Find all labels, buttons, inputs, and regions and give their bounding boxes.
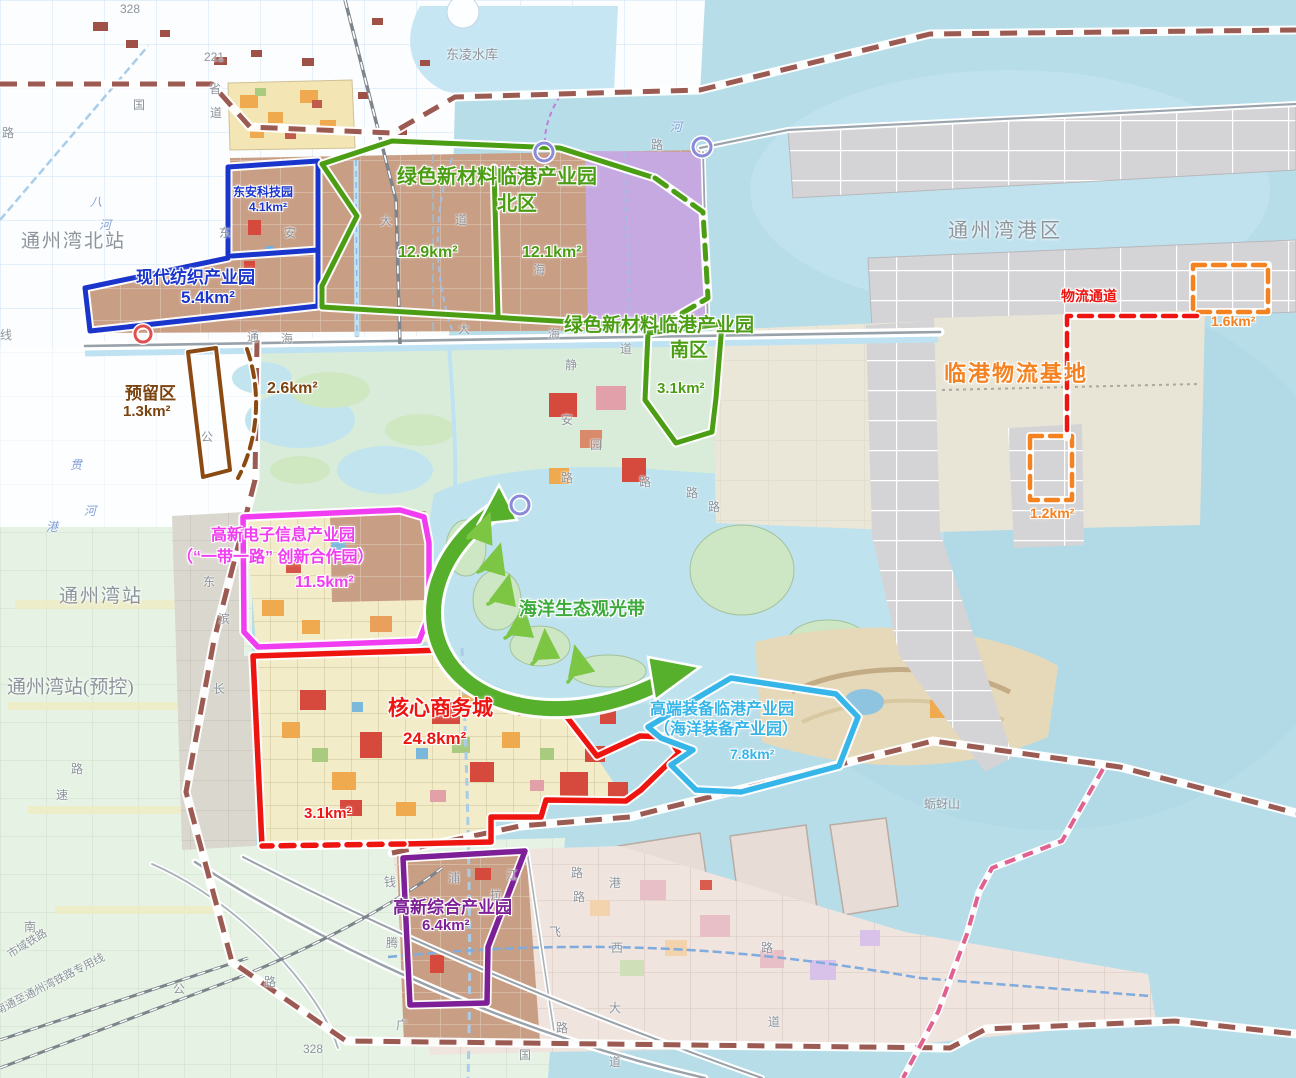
label-equipment-area: 7.8km² [730, 747, 774, 762]
label-logistics-area-north: 1.6km² [1211, 314, 1255, 329]
road-label: 南 [24, 918, 36, 935]
label-equipment-sub: （海洋装备产业园） [654, 722, 798, 739]
label-textile-area: 5.4km² [181, 289, 235, 307]
label-reserved-area: 1.3km² [123, 404, 171, 420]
label-electronics-name: 高新电子信息产业园 [211, 528, 355, 545]
label-green-south-name: 绿色新材料临港产业园 [564, 316, 754, 336]
road-label: 大 [609, 999, 621, 1016]
map-canvas [0, 0, 1296, 1078]
label-tzw-station: 通州湾站 [59, 581, 143, 608]
label-electronics-area: 11.5km² [295, 575, 354, 592]
road-label: 省 [209, 80, 221, 97]
label-core-city-name: 核心商务城 [388, 698, 493, 720]
label-green-north-name: 绿色新材料临港产业园 [397, 167, 597, 188]
road-label: 海 [281, 330, 293, 347]
road-label: 公 [201, 428, 213, 445]
road-label: 港 [46, 518, 58, 535]
label-green-south-sub: 南区 [670, 341, 708, 361]
label-dongan-name: 东安科技园 [233, 186, 293, 199]
road-label: 线 [0, 326, 12, 343]
road-label: 道 [455, 211, 467, 228]
road-label: 道 [768, 1013, 780, 1030]
label-green-north-area-east: 12.1km² [522, 245, 582, 262]
road-label: 钱 [384, 873, 396, 890]
road-label: 拉 [490, 886, 502, 903]
planning-map[interactable]: 东安科技园 4.1km² 现代纺织产业园 5.4km² 绿色新材料临港产业园 北… [0, 0, 1296, 1078]
label-tzw-station-reserved: 通州湾站(预控) [7, 672, 134, 699]
road-label: 海 [548, 325, 560, 342]
road-label: 港 [609, 874, 621, 891]
road-label: 大 [458, 320, 470, 337]
road-label: 328 [120, 2, 140, 16]
road-label: 道 [620, 340, 632, 357]
label-textile-name: 现代纺织产业园 [136, 269, 255, 287]
road-label: 园 [590, 436, 602, 453]
label-reservoir: 东凌水库 [446, 44, 498, 63]
label-reserved-name: 预留区 [125, 385, 176, 403]
label-eco-belt: 海洋生态观光带 [519, 600, 645, 619]
road-label: 路 [561, 469, 573, 486]
label-core-city-area2: 3.1km² [304, 806, 352, 822]
reservoir [410, 0, 618, 99]
label-reserved-area2: 2.6km² [267, 381, 318, 398]
label-logistics-area-south: 1.2km² [1030, 506, 1074, 521]
road-label: 滨 [218, 610, 230, 627]
label-green-north-sub: 北区 [497, 194, 537, 215]
road-label: 328 [303, 1042, 323, 1056]
label-logistics-corridor: 物流通道 [1061, 289, 1117, 304]
road-label: 长 [213, 680, 225, 697]
road-label: 通 [247, 328, 259, 345]
road-label: 河 [99, 216, 111, 233]
road-label: 国 [519, 1046, 531, 1063]
road-label: 路 [708, 498, 720, 515]
road-label: 东 [219, 224, 231, 241]
road-label: 路 [761, 939, 773, 956]
road-label: 安 [284, 224, 296, 241]
road-label: 贯 [70, 456, 82, 473]
road-label: 东 [203, 573, 215, 590]
road-label: 路 [71, 760, 83, 777]
road-label: 路 [686, 484, 698, 501]
road-label: 路 [264, 973, 276, 990]
road-label: 安 [561, 411, 573, 428]
road-label: 浦 [448, 869, 460, 886]
label-core-city-area: 24.8km² [403, 730, 466, 748]
label-tzw-port: 通州湾港区 [948, 214, 1063, 243]
road-label: 路 [556, 1019, 568, 1036]
road-label: 路 [573, 888, 585, 905]
road-label: 广 [396, 1016, 408, 1033]
label-electronics-sub: （“一带一路” 创新合作园） [177, 550, 373, 567]
label-island: 蛎蚜山 [924, 795, 960, 812]
road-label: 河 [670, 118, 682, 135]
road-label: 路 [571, 864, 583, 881]
road-label: 西 [611, 939, 623, 956]
road-label: 腾 [386, 934, 398, 951]
road-label: 道 [609, 1053, 621, 1070]
road-label: 路 [639, 473, 651, 490]
road-label: 八 [90, 193, 102, 210]
road-label: 河 [84, 502, 96, 519]
label-dongan-area: 4.1km² [249, 201, 287, 214]
road-label: 海 [533, 261, 545, 278]
existing-town [228, 80, 355, 150]
label-green-south-area: 3.1km² [657, 381, 705, 397]
road-label: 国 [133, 96, 145, 113]
road-label: 大 [380, 212, 392, 229]
road-label: 公 [173, 980, 185, 997]
label-comprehensive-area: 6.4km² [422, 918, 470, 934]
road-label: 速 [56, 786, 68, 803]
road-label: 飞 [549, 923, 561, 940]
road-label: 路 [651, 136, 663, 153]
road-label: 静 [565, 356, 577, 373]
road-label: 221 [204, 50, 224, 64]
label-equipment-name: 高端装备临港产业园 [650, 702, 794, 719]
label-logistics-base: 临港物流基地 [944, 362, 1088, 385]
label-green-north-area-west: 12.9km² [398, 245, 458, 262]
road-label: 江 [506, 866, 518, 883]
road-label: 道 [210, 104, 222, 121]
road-label: 路 [2, 124, 14, 141]
